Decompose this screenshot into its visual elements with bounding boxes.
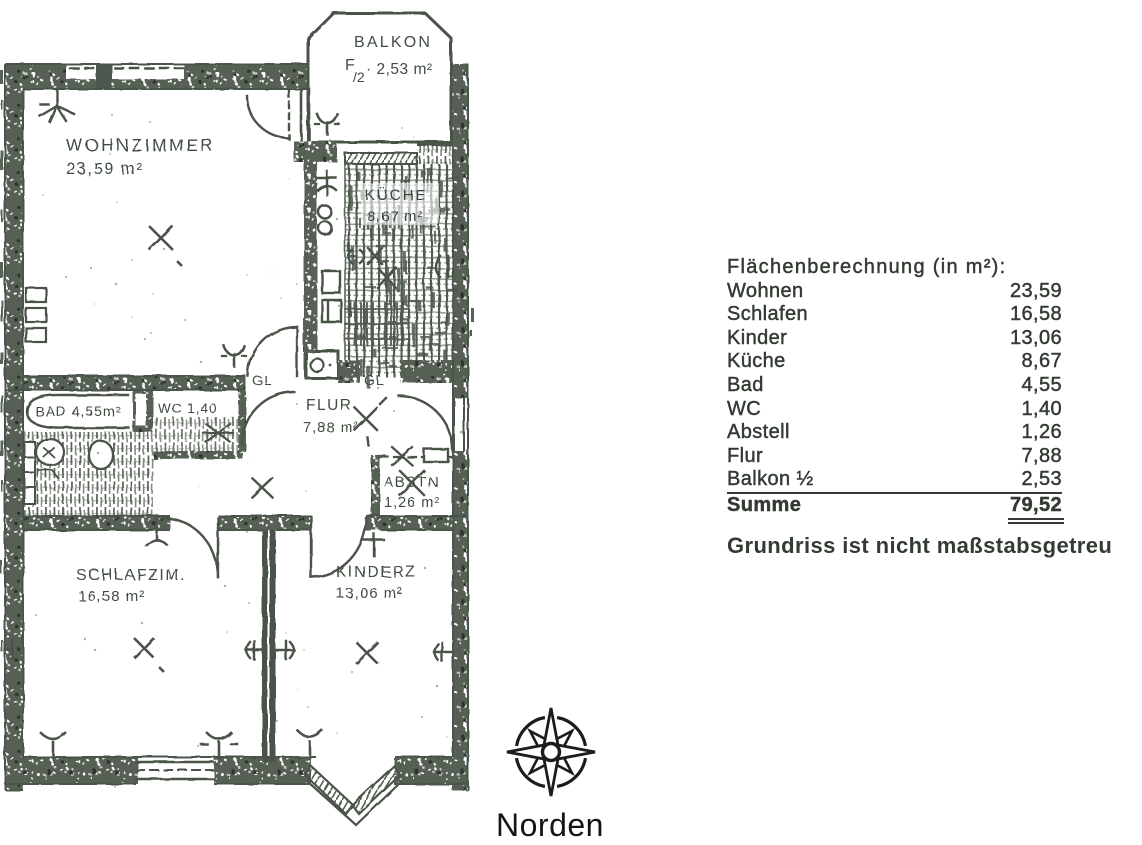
svg-text:1,26 m²: 1,26 m²: [384, 495, 440, 511]
svg-text:· 2,53 m²: · 2,53 m²: [366, 61, 433, 78]
svg-text:GL: GL: [364, 372, 385, 388]
svg-text:13,06 m²: 13,06 m²: [336, 585, 403, 602]
svg-text:BALKON: BALKON: [354, 34, 432, 51]
svg-text:WOHNZIMMER: WOHNZIMMER: [66, 135, 215, 155]
svg-text:BAD 4,55m²: BAD 4,55m²: [35, 403, 121, 419]
svg-text:KINDERZ: KINDERZ: [336, 564, 417, 581]
svg-text:8,67 m²: 8,67 m²: [367, 209, 423, 225]
svg-text:7,88 m²: 7,88 m²: [303, 420, 359, 436]
svg-text:KÜCHE: KÜCHE: [365, 186, 428, 204]
svg-text:GL: GL: [252, 372, 273, 388]
svg-text:/2: /2: [353, 69, 365, 85]
svg-text:23,59 m²: 23,59 m²: [66, 160, 143, 178]
svg-text:WC 1,40: WC 1,40: [158, 401, 218, 416]
svg-text:16,58 m²: 16,58 m²: [78, 588, 145, 605]
svg-text:FLUR: FLUR: [306, 397, 352, 414]
svg-text:SCHLAFZIM.: SCHLAFZIM.: [76, 567, 186, 584]
